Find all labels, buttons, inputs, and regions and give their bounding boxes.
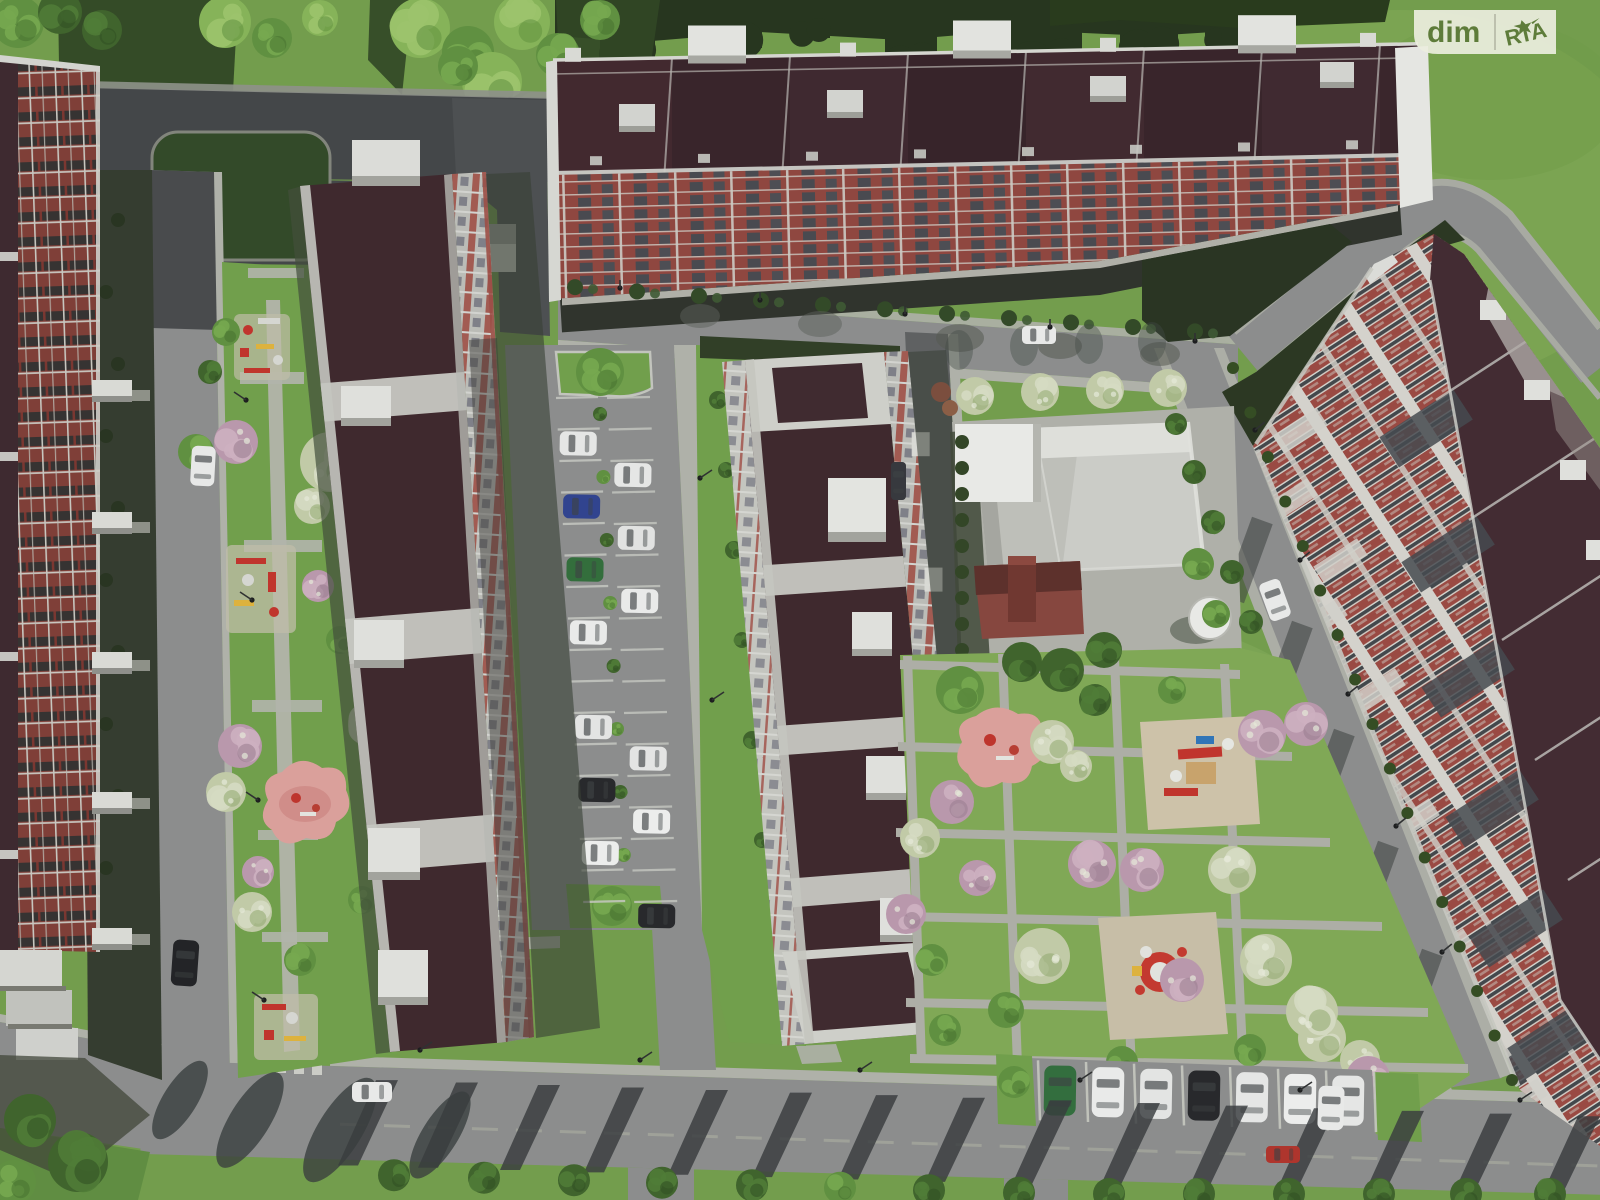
svg-text:dim: dim [1427, 16, 1480, 49]
